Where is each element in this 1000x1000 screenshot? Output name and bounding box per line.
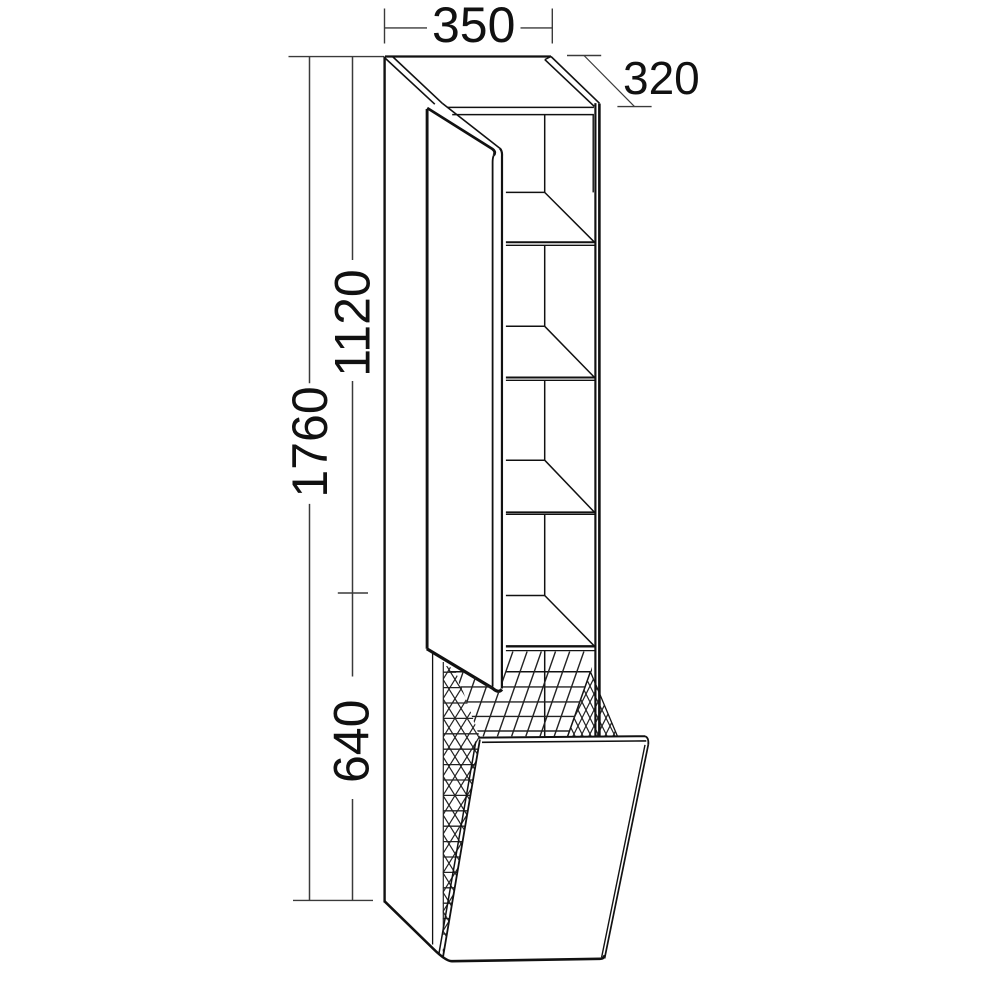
svg-text:640: 640 [324,700,380,783]
svg-text:350: 350 [432,0,515,53]
svg-text:1120: 1120 [325,269,381,377]
svg-text:320: 320 [623,52,700,104]
svg-text:1760: 1760 [282,386,338,497]
